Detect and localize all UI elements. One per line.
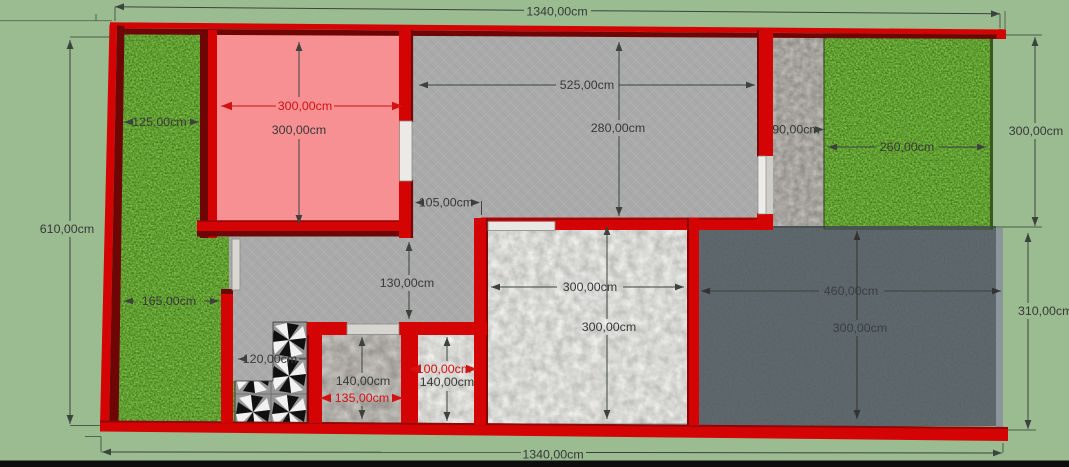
svg-text:300,00cm: 300,00cm [278,99,332,113]
svg-text:300,00cm: 300,00cm [1009,124,1063,138]
svg-text:610,00cm: 610,00cm [40,222,94,236]
svg-text:130,00cm: 130,00cm [380,276,434,290]
svg-text:300,00cm: 300,00cm [563,280,617,294]
svg-text:310,00cm: 310,00cm [1018,304,1069,318]
svg-text:140,00cm: 140,00cm [336,374,390,388]
svg-text:300,00cm: 300,00cm [582,320,636,334]
svg-text:1340,00cm: 1340,00cm [522,448,583,462]
svg-text:125,00cm: 125,00cm [132,115,186,129]
svg-text:105,00cm: 105,00cm [419,196,473,210]
svg-text:120,00cm: 120,00cm [243,352,297,366]
svg-text:260,00cm: 260,00cm [880,140,934,154]
svg-text:135,00cm: 135,00cm [335,391,389,405]
svg-text:100,00cm: 100,00cm [417,362,471,376]
svg-text:1340,00cm: 1340,00cm [526,5,587,19]
svg-text:165,00cm: 165,00cm [142,294,196,308]
svg-text:140,00cm: 140,00cm [420,375,474,389]
svg-text:300,00cm: 300,00cm [833,321,887,335]
svg-text:280,00cm: 280,00cm [591,121,645,135]
svg-text:300,00cm: 300,00cm [272,123,326,137]
svg-text:460,00cm: 460,00cm [824,284,878,298]
svg-text:90,00cm: 90,00cm [772,123,820,137]
svg-text:525,00cm: 525,00cm [560,78,614,92]
